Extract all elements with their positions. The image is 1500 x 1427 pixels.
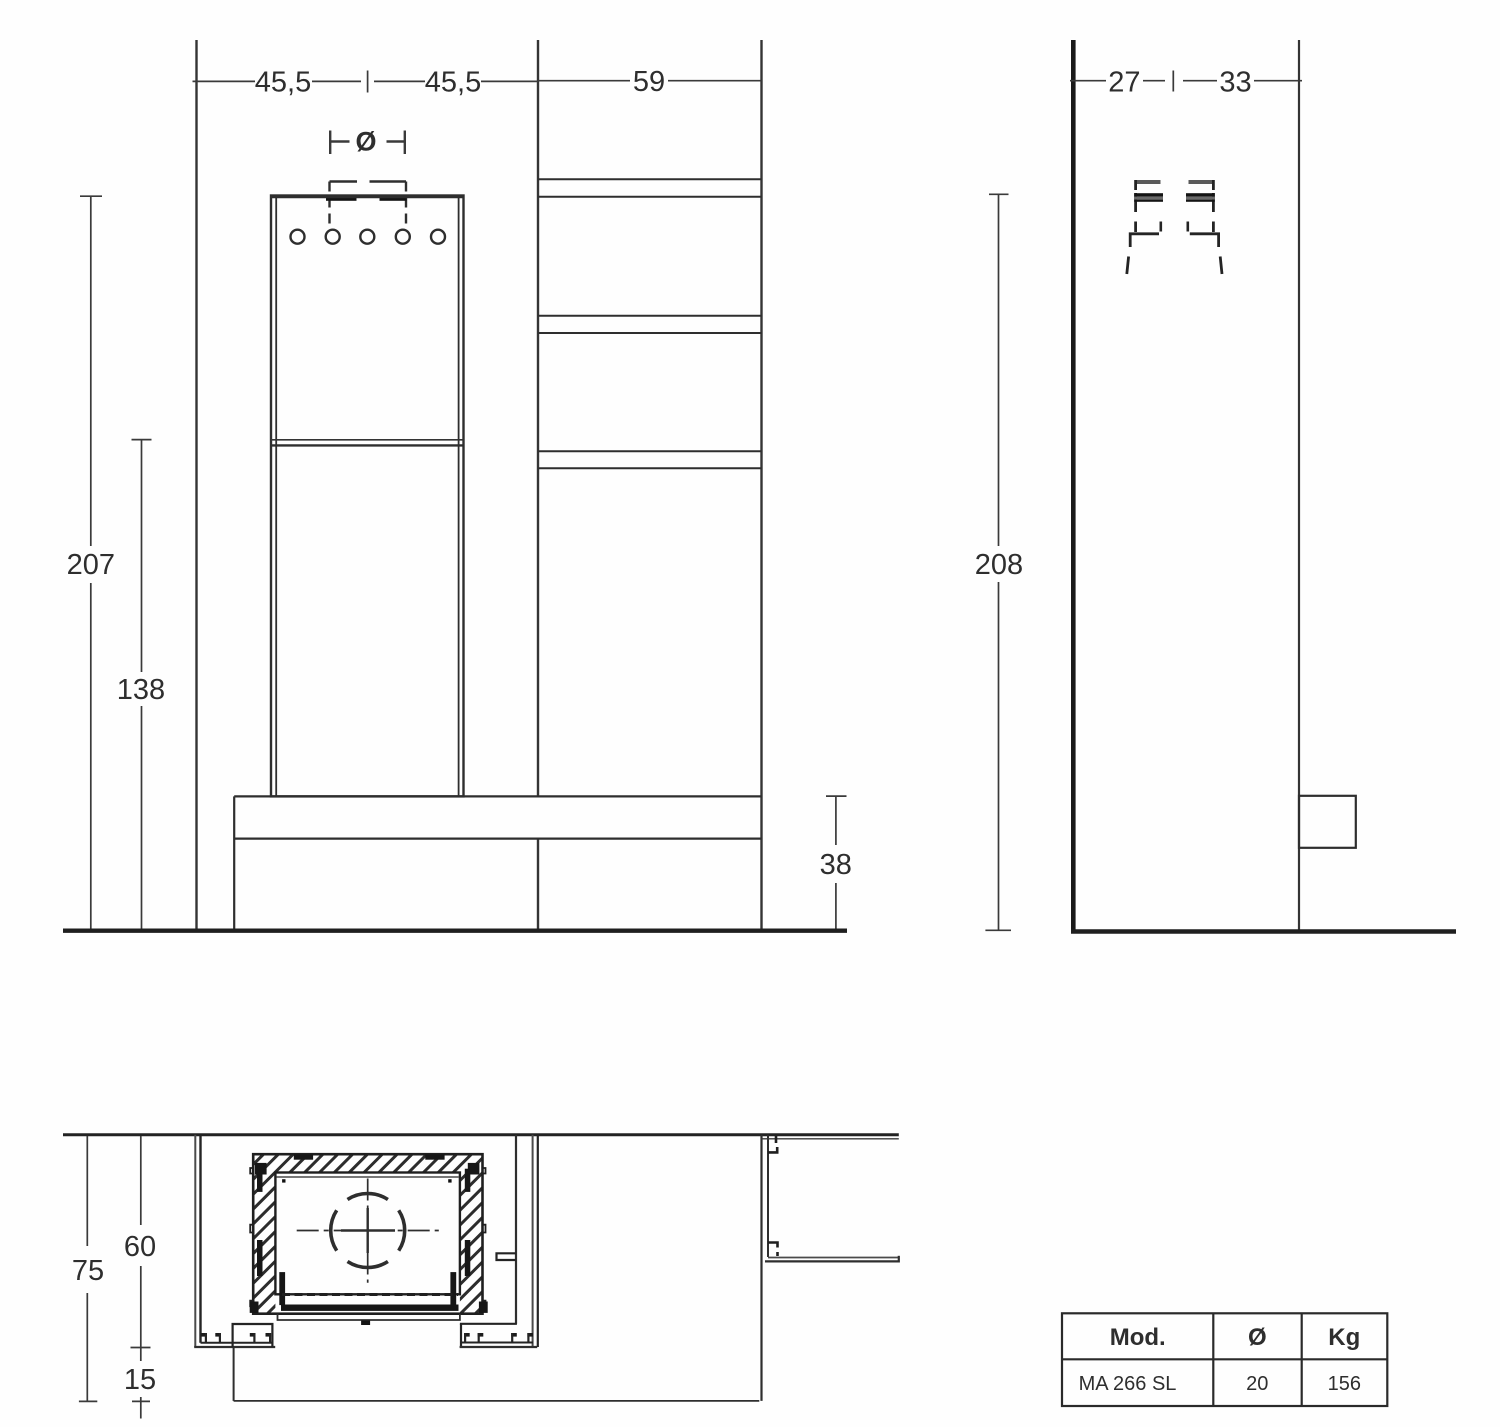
- svg-text:20: 20: [1246, 1373, 1268, 1395]
- svg-text:45,5: 45,5: [425, 67, 481, 99]
- svg-text:45,5: 45,5: [255, 67, 311, 99]
- svg-text:33: 33: [1219, 67, 1251, 99]
- svg-text:60: 60: [124, 1231, 156, 1263]
- svg-text:15: 15: [124, 1364, 156, 1396]
- svg-text:38: 38: [820, 849, 852, 881]
- svg-text:208: 208: [975, 549, 1023, 581]
- svg-text:207: 207: [67, 549, 115, 581]
- svg-text:138: 138: [117, 674, 165, 706]
- svg-text:MA 266 SL: MA 266 SL: [1079, 1373, 1177, 1395]
- svg-text:Kg: Kg: [1328, 1324, 1360, 1351]
- svg-text:Mod.: Mod.: [1110, 1324, 1166, 1351]
- svg-text:27: 27: [1108, 67, 1140, 99]
- svg-text:156: 156: [1328, 1373, 1361, 1395]
- svg-text:59: 59: [633, 66, 665, 98]
- svg-text:Ø: Ø: [1248, 1324, 1267, 1351]
- svg-text:Ø: Ø: [355, 127, 376, 157]
- svg-text:75: 75: [72, 1255, 104, 1287]
